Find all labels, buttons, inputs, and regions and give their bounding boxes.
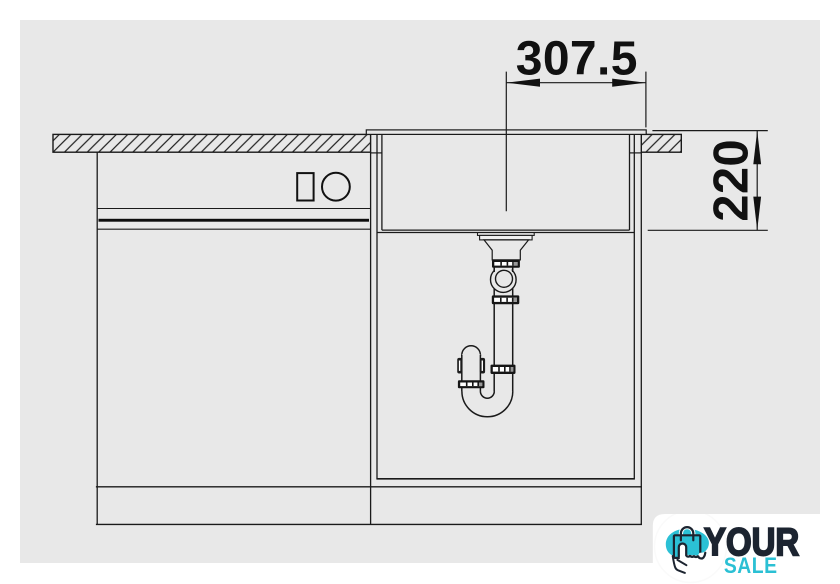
svg-text:307.5: 307.5: [516, 33, 638, 86]
svg-text:SALE: SALE: [724, 554, 778, 578]
svg-text:220: 220: [704, 139, 758, 222]
